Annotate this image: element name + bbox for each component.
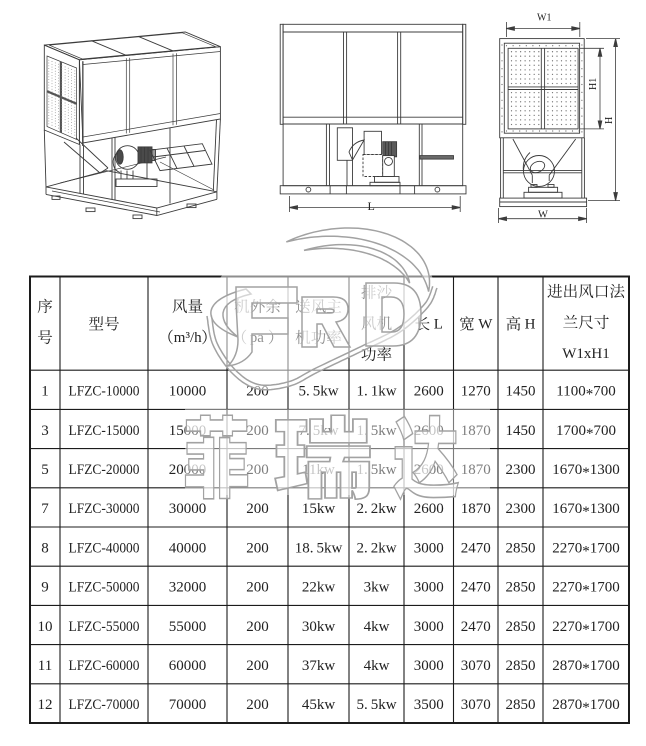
svg-text:1450: 1450	[506, 384, 536, 400]
svg-text:3000: 3000	[414, 658, 444, 674]
svg-text:LFZC-10000: LFZC-10000	[69, 384, 140, 400]
svg-text:2850: 2850	[506, 658, 536, 674]
svg-text:4kw: 4kw	[364, 658, 390, 674]
svg-text:200: 200	[246, 501, 269, 517]
svg-text:W1xH1: W1xH1	[562, 346, 610, 362]
svg-text:2300: 2300	[506, 501, 536, 517]
svg-text:2470: 2470	[461, 580, 491, 596]
svg-text:5. 5kw: 5. 5kw	[356, 697, 396, 713]
svg-text:3070: 3070	[461, 697, 491, 713]
svg-text:3: 3	[41, 423, 49, 439]
svg-text:2850: 2850	[506, 540, 536, 556]
svg-text:4kw: 4kw	[364, 619, 390, 635]
svg-text:L: L	[368, 199, 375, 213]
svg-text:W: W	[478, 317, 493, 333]
svg-text:3000: 3000	[414, 580, 444, 596]
svg-text:10000: 10000	[169, 384, 207, 400]
svg-text:5: 5	[41, 462, 49, 478]
svg-text:55000: 55000	[169, 619, 207, 635]
svg-text:9: 9	[41, 580, 49, 596]
svg-text:5. 5kw: 5. 5kw	[298, 384, 338, 400]
svg-text:2850: 2850	[506, 580, 536, 596]
svg-text:10: 10	[38, 619, 53, 635]
svg-text:LFZC-60000: LFZC-60000	[69, 658, 140, 674]
svg-text:2. 2kw: 2. 2kw	[356, 540, 396, 556]
svg-text:2850: 2850	[506, 619, 536, 635]
svg-text:45kw: 45kw	[302, 697, 336, 713]
svg-text:1: 1	[41, 384, 49, 400]
svg-text:200: 200	[246, 658, 269, 674]
svg-text:2. 2kw: 2. 2kw	[356, 501, 396, 517]
svg-text:LFZC-20000: LFZC-20000	[69, 462, 140, 478]
svg-text:200: 200	[246, 540, 269, 556]
svg-text:W1: W1	[537, 13, 551, 24]
svg-text:H1: H1	[588, 78, 599, 90]
svg-text:12: 12	[38, 697, 53, 713]
svg-text:L: L	[434, 317, 443, 333]
svg-text:30kw: 30kw	[302, 619, 336, 635]
svg-text:200: 200	[246, 580, 269, 596]
svg-text:11: 11	[38, 658, 52, 674]
svg-text:LFZC-40000: LFZC-40000	[69, 540, 140, 556]
svg-text:LFZC-30000: LFZC-30000	[69, 501, 140, 517]
svg-text:LFZC-50000: LFZC-50000	[69, 580, 140, 596]
svg-text:1450: 1450	[506, 423, 536, 439]
svg-text:60000: 60000	[169, 658, 207, 674]
svg-text:8: 8	[41, 540, 49, 556]
svg-text:m³/h: m³/h	[174, 330, 202, 346]
svg-text:3000: 3000	[414, 540, 444, 556]
svg-text:2600: 2600	[414, 384, 444, 400]
svg-text:40000: 40000	[169, 540, 207, 556]
svg-text:200: 200	[246, 697, 269, 713]
svg-text:LFZC-70000: LFZC-70000	[69, 697, 140, 713]
svg-text:2470: 2470	[461, 619, 491, 635]
svg-text:H: H	[525, 317, 536, 333]
svg-text:37kw: 37kw	[302, 658, 336, 674]
svg-text:LFZC-55000: LFZC-55000	[69, 619, 140, 635]
svg-text:1270: 1270	[461, 384, 491, 400]
svg-text:200: 200	[246, 619, 269, 635]
svg-text:3500: 3500	[414, 697, 444, 713]
svg-text:LFZC-15000: LFZC-15000	[69, 423, 140, 439]
svg-text:W: W	[538, 210, 548, 221]
svg-text:2850: 2850	[506, 697, 536, 713]
svg-text:7: 7	[41, 501, 49, 517]
svg-text:15kw: 15kw	[302, 501, 336, 517]
svg-text:32000: 32000	[169, 580, 207, 596]
svg-text:70000: 70000	[169, 697, 207, 713]
svg-text:18. 5kw: 18. 5kw	[295, 540, 343, 556]
svg-text:2470: 2470	[461, 540, 491, 556]
svg-text:H: H	[604, 117, 615, 124]
svg-text:3000: 3000	[414, 619, 444, 635]
svg-text:2600: 2600	[414, 501, 444, 517]
svg-text:3070: 3070	[461, 658, 491, 674]
svg-text:30000: 30000	[169, 501, 207, 517]
svg-text:1. 1kw: 1. 1kw	[356, 384, 396, 400]
svg-text:1870: 1870	[461, 501, 491, 517]
svg-text:22kw: 22kw	[302, 580, 336, 596]
svg-text:2300: 2300	[506, 462, 536, 478]
svg-text:3kw: 3kw	[364, 580, 390, 596]
